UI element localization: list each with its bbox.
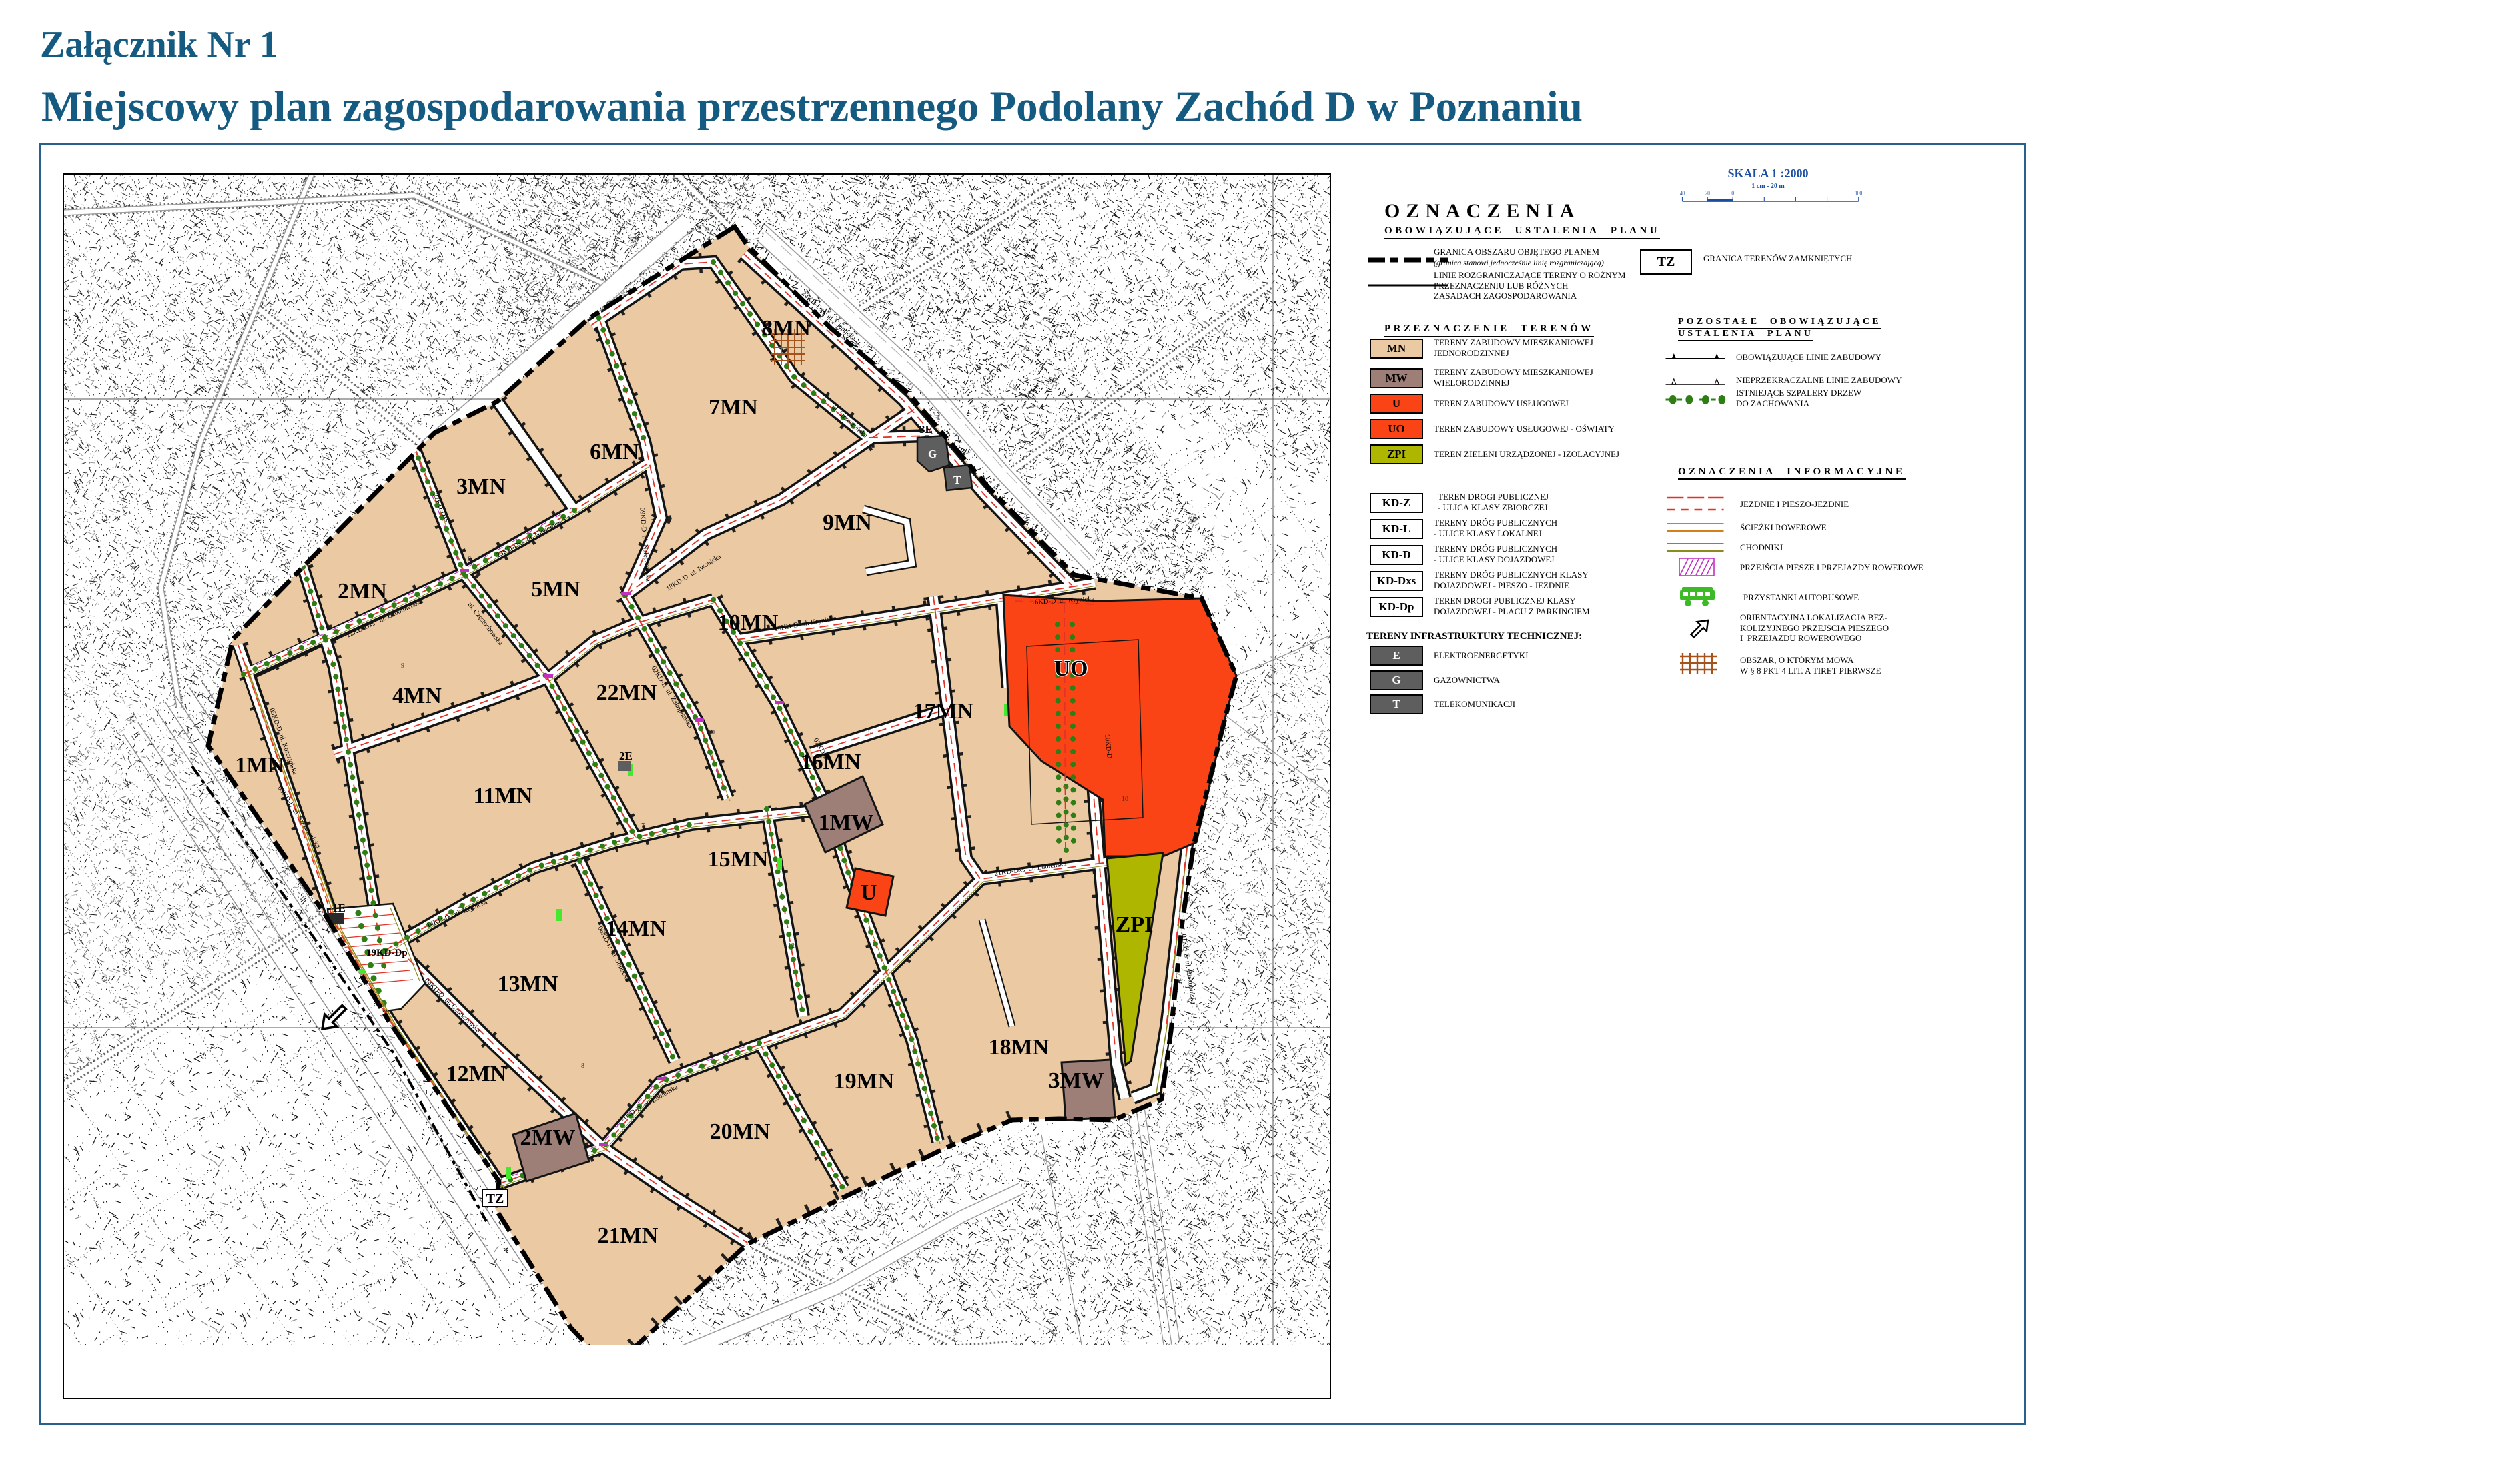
svg-text:9: 9 <box>401 662 404 670</box>
svg-text:2MW: 2MW <box>520 1125 575 1150</box>
svg-text:40: 40 <box>1680 189 1685 197</box>
svg-text:0: 0 <box>1731 189 1734 197</box>
svg-text:13MN: 13MN <box>498 972 558 996</box>
svg-text:6: 6 <box>468 556 471 563</box>
svg-text:10: 10 <box>708 729 715 736</box>
svg-text:100: 100 <box>1855 189 1862 197</box>
svg-text:15MN: 15MN <box>708 847 769 872</box>
svg-text:1MW: 1MW <box>818 810 873 835</box>
svg-text:21MN: 21MN <box>598 1223 659 1248</box>
svg-text:8MN: 8MN <box>761 316 811 341</box>
svg-text:2MN: 2MN <box>338 579 387 604</box>
svg-text:11MN: 11MN <box>474 784 533 808</box>
svg-text:6MN: 6MN <box>590 440 639 464</box>
svg-text:19MN: 19MN <box>834 1069 895 1094</box>
svg-text:20: 20 <box>1705 189 1710 197</box>
svg-text:1MN: 1MN <box>235 753 284 778</box>
svg-text:20MN: 20MN <box>710 1119 771 1144</box>
svg-text:14MN: 14MN <box>606 916 667 941</box>
svg-text:10: 10 <box>1122 796 1128 803</box>
svg-text:5: 5 <box>561 499 564 506</box>
svg-text:7MN: 7MN <box>709 395 758 420</box>
svg-text:22MN: 22MN <box>596 680 657 705</box>
svg-text:T: T <box>953 474 961 486</box>
svg-text:3MN: 3MN <box>456 474 506 499</box>
svg-text:16MN: 16MN <box>801 750 861 774</box>
svg-text:4MN: 4MN <box>392 684 442 708</box>
svg-text:5MN: 5MN <box>531 577 580 602</box>
svg-text:UO: UO <box>1054 656 1088 681</box>
svg-text:U: U <box>861 880 877 905</box>
svg-text:9MN: 9MN <box>823 510 872 535</box>
svg-text:7: 7 <box>641 822 645 830</box>
svg-text:5: 5 <box>868 729 871 736</box>
svg-text:3MW: 3MW <box>1048 1068 1104 1093</box>
svg-text:10MN: 10MN <box>718 610 779 635</box>
svg-text:1E: 1E <box>332 902 346 914</box>
svg-text:G: G <box>928 448 937 460</box>
svg-text:12: 12 <box>788 942 795 950</box>
svg-text:TZ: TZ <box>486 1191 504 1206</box>
svg-text:19KD-Dp: 19KD-Dp <box>366 948 408 958</box>
svg-text:18MN: 18MN <box>989 1035 1049 1060</box>
svg-text:3E: 3E <box>919 423 933 436</box>
svg-text:17MN: 17MN <box>913 699 974 724</box>
svg-text:ZPI: ZPI <box>1116 912 1154 937</box>
svg-text:2E: 2E <box>619 750 633 762</box>
svg-text:12MN: 12MN <box>446 1062 507 1086</box>
svg-text:8: 8 <box>581 1062 584 1070</box>
